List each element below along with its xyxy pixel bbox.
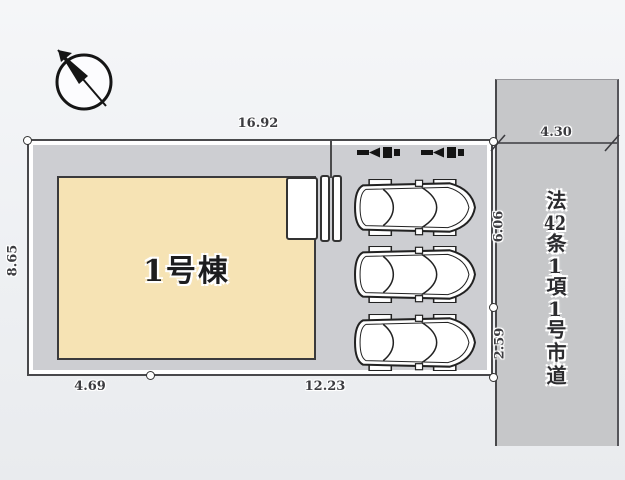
car-top-view-icon	[353, 246, 478, 303]
boundary-fence-line	[330, 141, 332, 178]
boundary-point-marker	[489, 373, 498, 382]
boundary-point-marker	[146, 371, 155, 380]
building-label: 1号棟	[143, 246, 230, 290]
entry-arrow-icon	[420, 146, 466, 159]
boundary-point-marker	[489, 303, 498, 312]
road-name-label: 法42条1項1号市道	[541, 190, 570, 436]
dim-top-width: 16.92	[200, 116, 316, 131]
north-arrow-icon	[44, 40, 122, 116]
boundary-point-marker	[23, 136, 32, 145]
porch-entrance	[286, 177, 318, 240]
car-top-view-icon	[353, 179, 478, 236]
building-1: 1号棟	[57, 176, 316, 360]
site-plan-canvas: 1号棟	[0, 0, 625, 480]
boundary-point-marker	[489, 137, 498, 146]
car-top-view-icon	[353, 314, 478, 371]
dim-bottom-right: 12.23	[292, 379, 358, 394]
dim-bottom-left: 4.69	[60, 379, 120, 394]
porch-step-1	[320, 175, 330, 242]
porch-step-2	[332, 175, 342, 242]
dim-left-height: 8.65	[6, 229, 21, 293]
dim-right-lower: 2.59	[493, 312, 508, 376]
dim-road-width: 4.30	[524, 125, 588, 140]
entry-arrow-icon	[356, 146, 402, 159]
dim-right-upper: 6.06	[492, 195, 507, 259]
